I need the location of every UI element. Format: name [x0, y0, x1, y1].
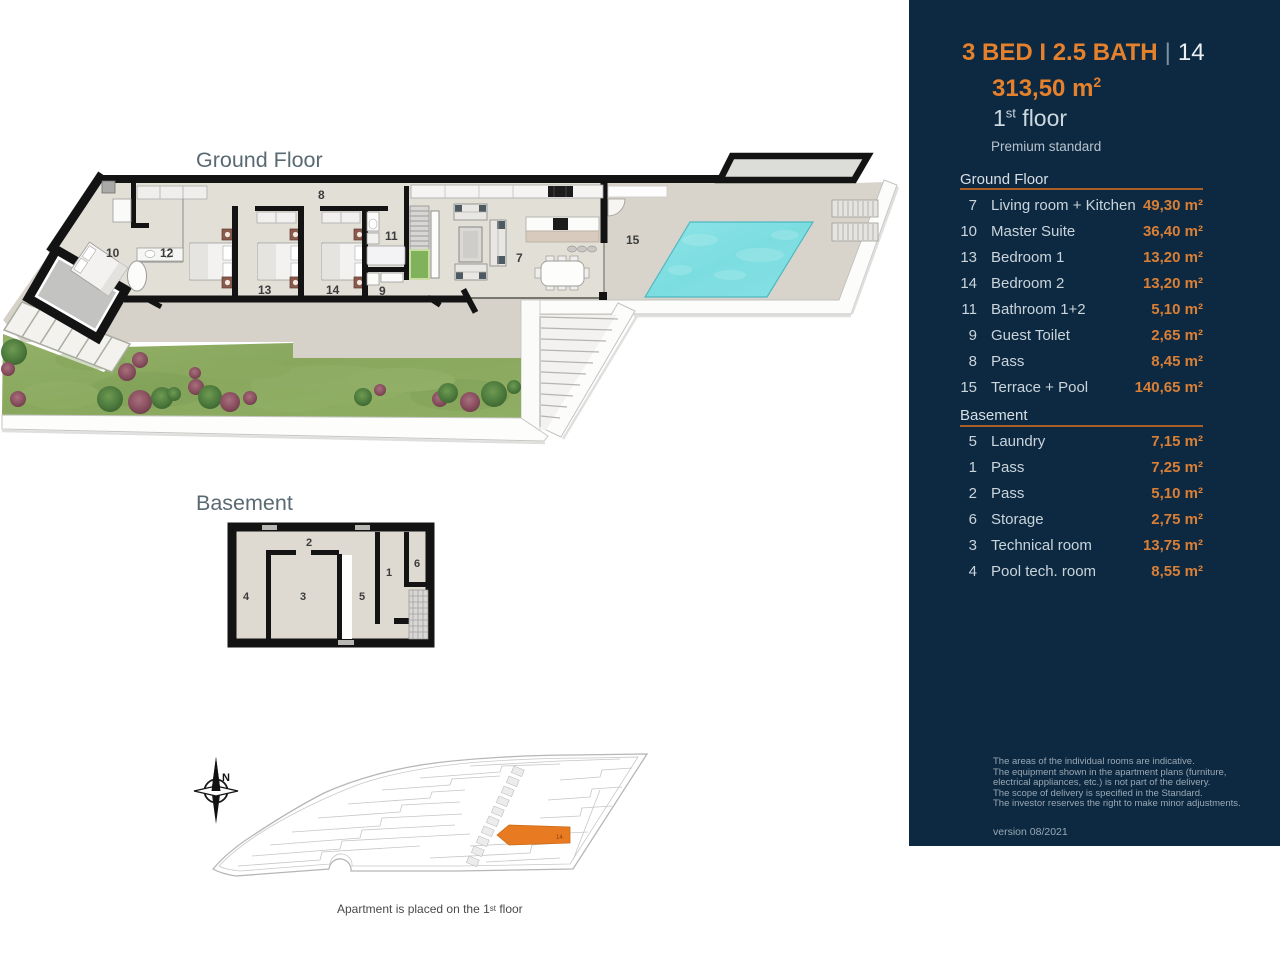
svg-text:14: 14 — [326, 283, 340, 297]
svg-text:11: 11 — [385, 229, 398, 243]
svg-text:12: 12 — [160, 246, 174, 260]
svg-text:1: 1 — [386, 567, 392, 579]
svg-text:6: 6 — [414, 558, 420, 570]
svg-text:3: 3 — [300, 591, 306, 603]
svg-text:5: 5 — [359, 591, 365, 603]
svg-text:13: 13 — [258, 283, 272, 297]
svg-text:14: 14 — [556, 835, 563, 841]
svg-text:8: 8 — [318, 188, 325, 202]
svg-text:Basement: Basement — [196, 491, 293, 515]
svg-text:Apartment is placed on the 1st: Apartment is placed on the 1st floor — [337, 902, 523, 916]
svg-text:15: 15 — [626, 233, 640, 247]
svg-text:4: 4 — [243, 591, 250, 603]
svg-text:9: 9 — [379, 284, 386, 298]
svg-text:2: 2 — [306, 537, 312, 549]
svg-text:Ground Floor: Ground Floor — [196, 148, 323, 172]
svg-text:N: N — [222, 772, 230, 784]
svg-text:7: 7 — [516, 251, 523, 265]
svg-text:10: 10 — [106, 246, 120, 260]
